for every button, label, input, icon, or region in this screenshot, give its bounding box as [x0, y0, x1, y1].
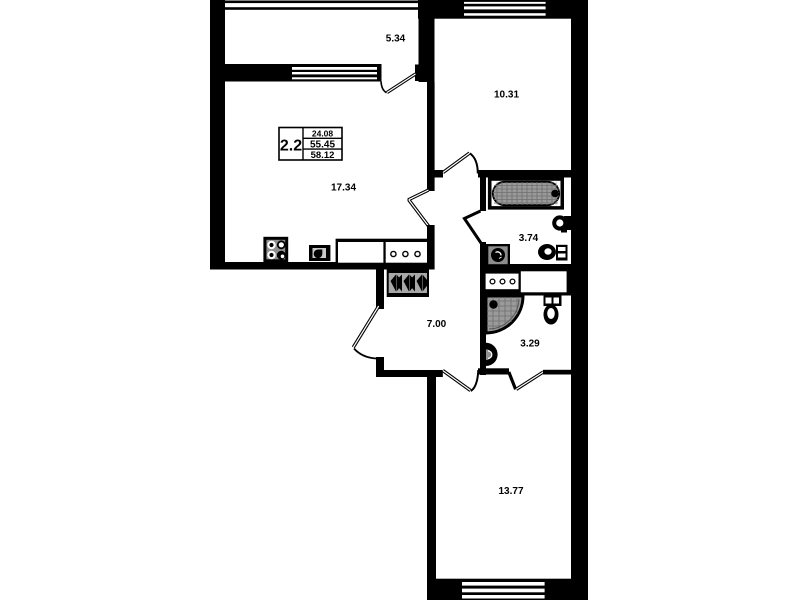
svg-text:58.12: 58.12	[311, 150, 335, 161]
svg-text:3.29: 3.29	[520, 339, 540, 350]
svg-text:17.34: 17.34	[331, 183, 356, 194]
svg-text:5.34: 5.34	[386, 34, 406, 45]
svg-text:2.2: 2.2	[280, 138, 302, 155]
svg-text:24.08: 24.08	[312, 129, 334, 139]
svg-text:55.45: 55.45	[310, 140, 335, 151]
svg-text:7.00: 7.00	[427, 319, 447, 330]
svg-text:10.31: 10.31	[494, 90, 519, 101]
svg-text:3.74: 3.74	[519, 233, 539, 244]
svg-text:13.77: 13.77	[498, 486, 523, 497]
